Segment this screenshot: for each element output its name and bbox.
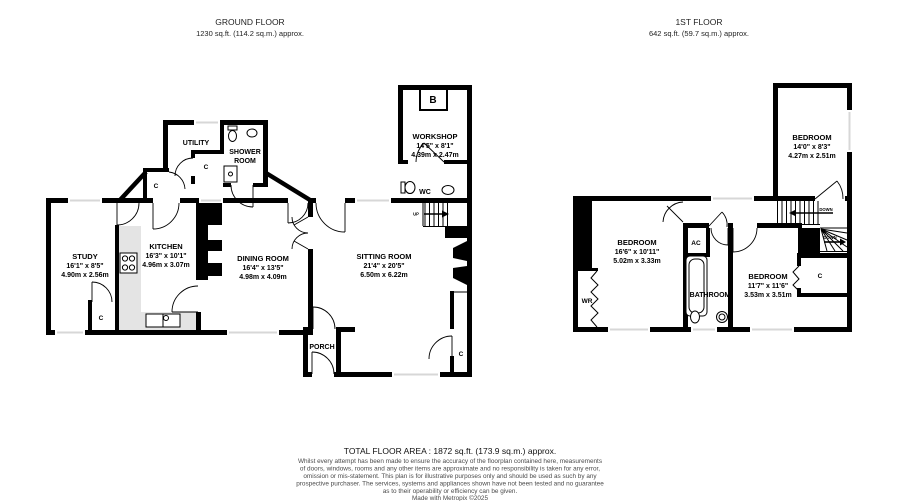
svg-text:16'3" x 10'1": 16'3" x 10'1" bbox=[145, 253, 186, 260]
ground-floor-diagonal-walls bbox=[120, 172, 310, 200]
cupboard-label-utility: C bbox=[204, 164, 209, 171]
room-label-wc: WC bbox=[419, 189, 431, 196]
room-label-bedroom-right: BEDROOM 11'7" x 11'6" 3.53m x 3.51m bbox=[744, 272, 791, 299]
room-label-workshop: WORKSHOP 14'5" x 8'1" 4.39m x 2.47m bbox=[411, 132, 458, 159]
stairs-up bbox=[423, 203, 450, 227]
room-label-bedroom-top: BEDROOM 14'0" x 8'3" 4.27m x 2.51m bbox=[788, 133, 835, 160]
svg-text:WORKSHOP: WORKSHOP bbox=[413, 132, 458, 141]
airing-cupboard-label: AC bbox=[691, 240, 701, 247]
first-floor-subtitle: 642 sq.ft. (59.7 sq.m.) approx. bbox=[649, 29, 749, 38]
svg-text:KITCHEN: KITCHEN bbox=[149, 242, 182, 251]
room-label-shower-room-2: ROOM bbox=[234, 158, 256, 165]
first-floor-plan: BEDROOM 14'0" x 8'3" 4.27m x 2.51m BEDRO… bbox=[573, 83, 852, 332]
svg-text:6.50m x 6.22m: 6.50m x 6.22m bbox=[360, 272, 407, 279]
first-floor-title: 1ST FLOOR bbox=[675, 17, 722, 27]
svg-text:16'4" x 13'5": 16'4" x 13'5" bbox=[242, 265, 283, 272]
kitchen-faucet-icon bbox=[164, 316, 169, 321]
wc-toilet-icon bbox=[401, 182, 405, 193]
floorplan-page: GROUND FLOOR 1230 sq.ft. (114.2 sq.m.) a… bbox=[0, 0, 900, 501]
bathroom-toilet-icon bbox=[691, 311, 700, 323]
disclaimer-line-1: Whilst every attempt has been made to en… bbox=[298, 458, 602, 465]
ground-floor-plan: STUDY 16'1" x 8'5" 4.90m x 2.56m KITCHEN… bbox=[46, 85, 472, 377]
fireplace bbox=[453, 241, 467, 285]
svg-text:SITTING ROOM: SITTING ROOM bbox=[357, 252, 412, 261]
svg-text:4.98m x 4.09m: 4.98m x 4.09m bbox=[239, 274, 286, 281]
up-label: UP bbox=[413, 212, 419, 217]
room-label-dining-room: DINING ROOM 16'4" x 13'5" 4.98m x 4.09m bbox=[237, 254, 289, 281]
room-label-bedroom-left: BEDROOM 16'6" x 10'11" 5.02m x 3.33m bbox=[613, 238, 660, 265]
floor-headers: GROUND FLOOR 1230 sq.ft. (114.2 sq.m.) a… bbox=[196, 17, 749, 38]
shower-room-toilet-icon bbox=[228, 126, 237, 130]
disclaimer-line-3: omission or mis-statement. This plan is … bbox=[303, 473, 597, 480]
bathroom-fixtures bbox=[686, 256, 728, 323]
room-label-porch: PORCH bbox=[309, 344, 334, 351]
total-floor-area: TOTAL FLOOR AREA : 1872 sq.ft. (173.9 sq… bbox=[344, 446, 556, 456]
svg-text:16'6" x 10'11": 16'6" x 10'11" bbox=[615, 249, 660, 256]
svg-text:BEDROOM: BEDROOM bbox=[792, 133, 831, 142]
svg-text:3.53m x 3.51m: 3.53m x 3.51m bbox=[744, 292, 791, 299]
down-label-1: DOWN bbox=[819, 207, 832, 212]
shower-room-sink-icon bbox=[247, 129, 257, 137]
svg-text:4.90m x 2.56m: 4.90m x 2.56m bbox=[61, 272, 108, 279]
disclaimer-line-2: of doors, windows, rooms and any other i… bbox=[300, 466, 600, 473]
svg-text:11'7" x 11'6": 11'7" x 11'6" bbox=[748, 283, 788, 290]
cupboard-label-study: C bbox=[99, 315, 104, 322]
boiler-label: B bbox=[429, 95, 436, 106]
room-label-bathroom: BATHROOM bbox=[690, 292, 731, 299]
svg-text:5.02m x 3.33m: 5.02m x 3.33m bbox=[613, 258, 660, 265]
svg-text:16'1" x 8'5": 16'1" x 8'5" bbox=[66, 263, 103, 270]
floorplan-drawing: GROUND FLOOR 1230 sq.ft. (114.2 sq.m.) a… bbox=[0, 0, 900, 501]
room-label-utility: UTILITY bbox=[183, 140, 210, 147]
wardrobe-label: WR bbox=[582, 298, 593, 305]
hob-icon bbox=[120, 253, 137, 273]
svg-text:BEDROOM: BEDROOM bbox=[748, 272, 787, 281]
svg-text:14'5" x 8'1": 14'5" x 8'1" bbox=[416, 143, 453, 150]
footer: TOTAL FLOOR AREA : 1872 sq.ft. (173.9 sq… bbox=[296, 446, 604, 501]
room-label-kitchen: KITCHEN 16'3" x 10'1" 4.96m x 3.07m bbox=[142, 242, 189, 269]
disclaimer-line-4: prospective purchaser. The services, sys… bbox=[296, 481, 604, 488]
cupboard-label-first-floor: C bbox=[818, 273, 823, 280]
wc-sink-icon bbox=[442, 186, 454, 195]
ground-floor-title: GROUND FLOOR bbox=[215, 17, 284, 27]
down-label-2: DOWN bbox=[823, 235, 836, 240]
svg-text:DINING ROOM: DINING ROOM bbox=[237, 254, 289, 263]
svg-text:14'0" x 8'3": 14'0" x 8'3" bbox=[793, 144, 830, 151]
disclaimer-line-5: as to their operability or efficiency ca… bbox=[383, 488, 518, 495]
room-label-sitting-room: SITTING ROOM 21'4" x 20'5" 6.50m x 6.22m bbox=[357, 252, 412, 279]
credit-line: Made with Metropix ©2025 bbox=[412, 494, 489, 501]
ground-floor-subtitle: 1230 sq.ft. (114.2 sq.m.) approx. bbox=[196, 29, 304, 38]
svg-text:21'4" x 20'5": 21'4" x 20'5" bbox=[363, 263, 404, 270]
svg-text:4.39m x 2.47m: 4.39m x 2.47m bbox=[411, 152, 458, 159]
room-label-study: STUDY 16'1" x 8'5" 4.90m x 2.56m bbox=[61, 252, 108, 279]
down-arrow-icon bbox=[789, 210, 796, 217]
svg-text:STUDY: STUDY bbox=[72, 252, 97, 261]
cupboard-label-hall: C bbox=[459, 351, 464, 358]
cupboard-label-corridor: C bbox=[154, 183, 159, 190]
svg-text:4.96m x 3.07m: 4.96m x 3.07m bbox=[142, 262, 189, 269]
svg-text:BEDROOM: BEDROOM bbox=[617, 238, 656, 247]
room-label-shower-room-1: SHOWER bbox=[229, 149, 261, 156]
svg-text:4.27m x 2.51m: 4.27m x 2.51m bbox=[788, 153, 835, 160]
